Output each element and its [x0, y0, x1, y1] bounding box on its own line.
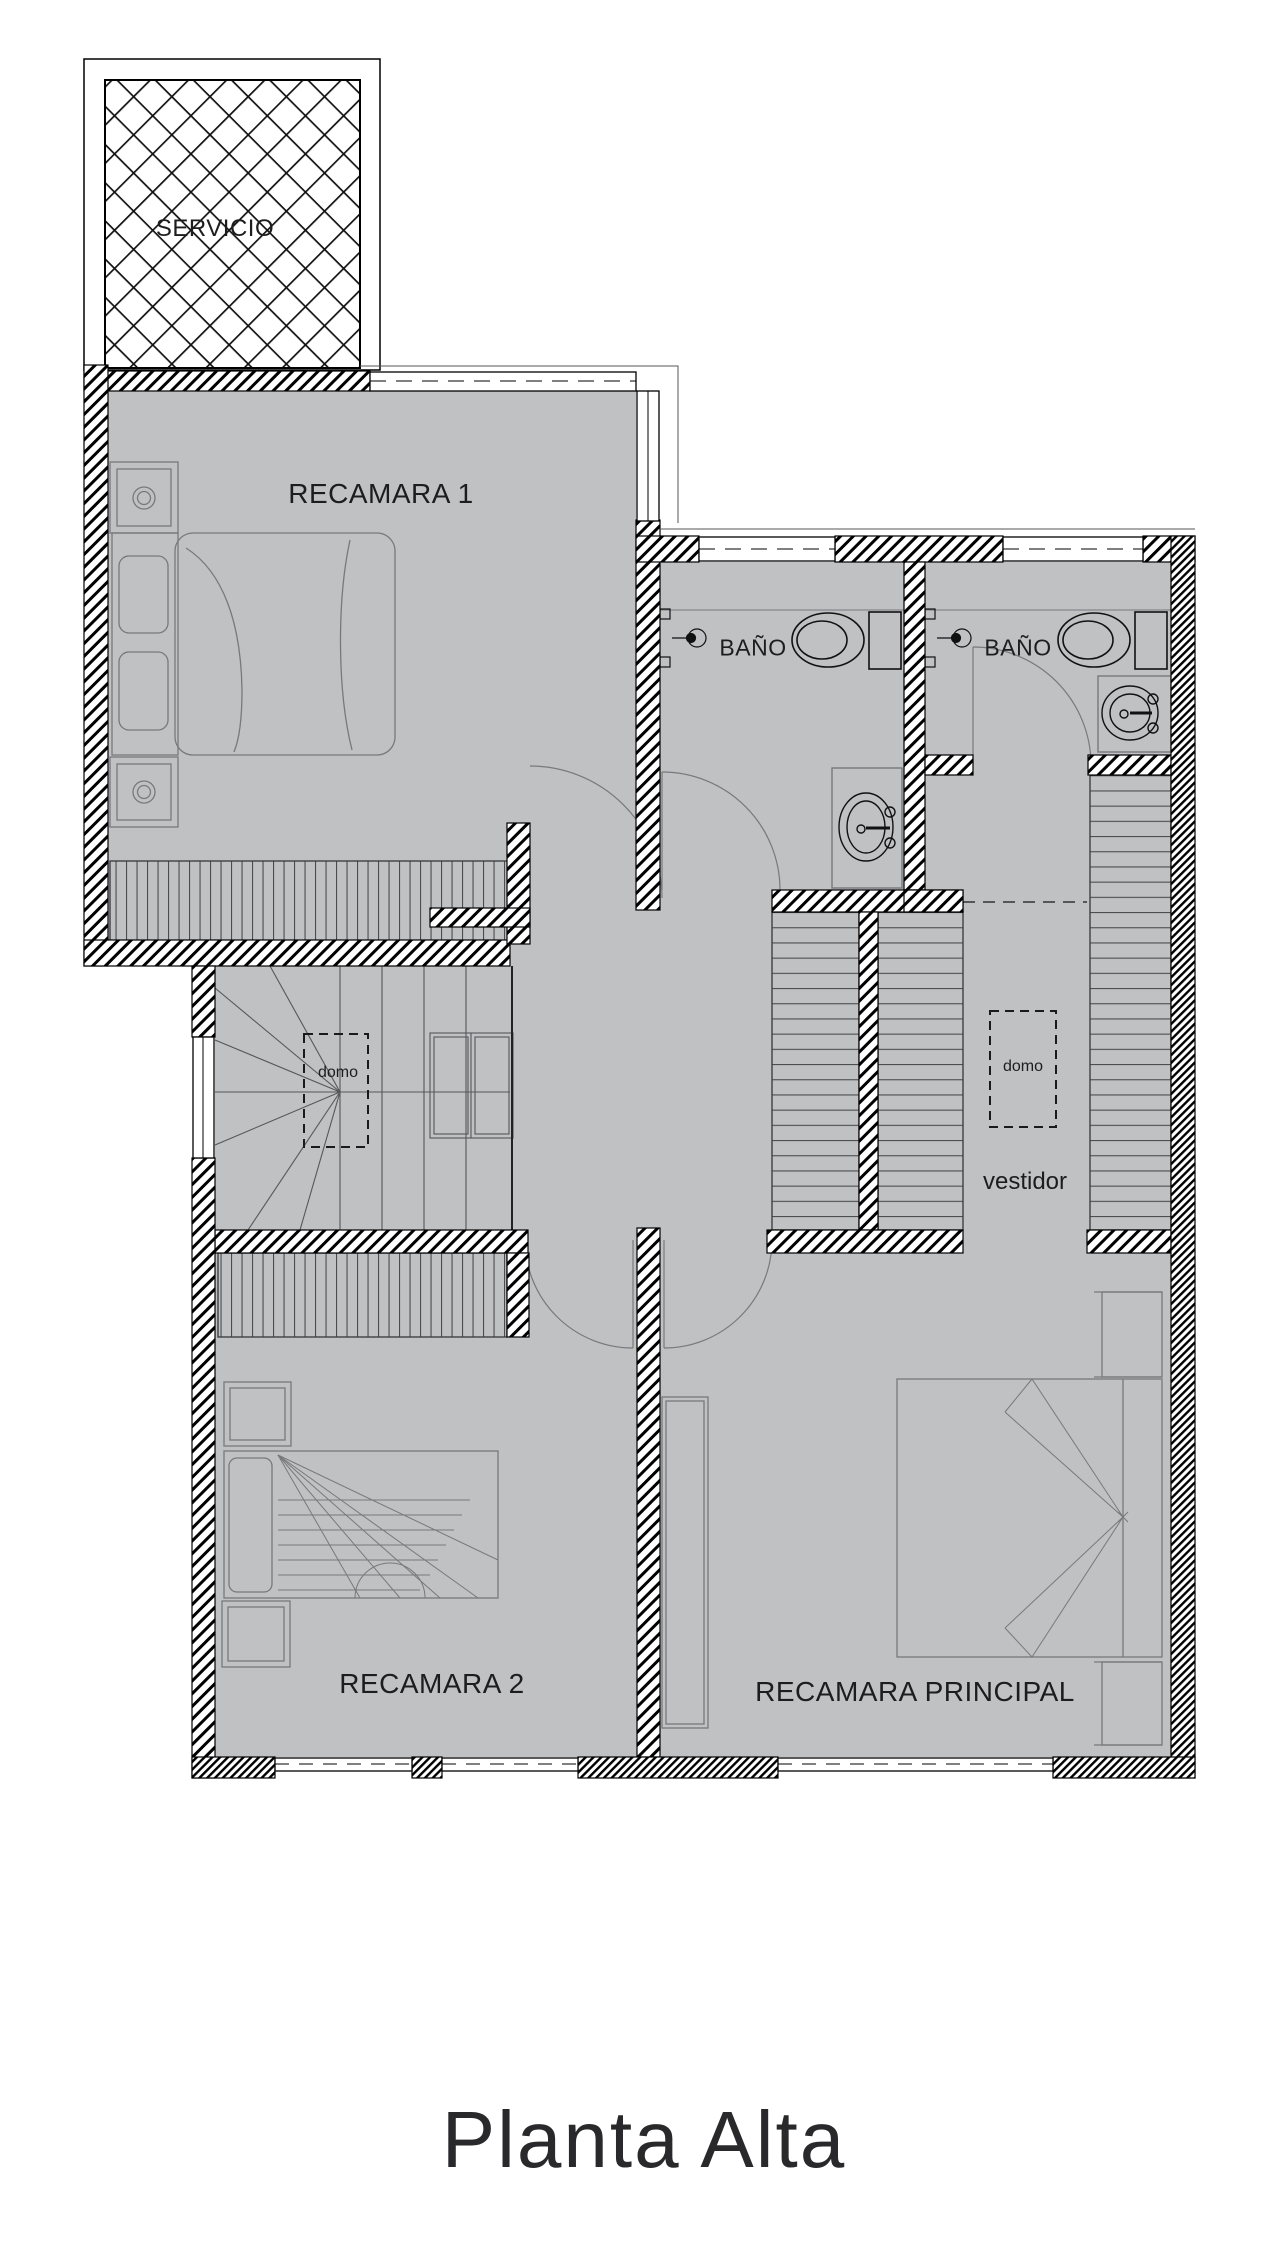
room-label-vestidor: vestidor [983, 1170, 1067, 1194]
room-label-bano-2: BAÑO [984, 637, 1051, 660]
room-label-recamara-2: RECAMARA 2 [339, 1670, 525, 1698]
closet-hall-left [772, 912, 859, 1230]
window-stairs-left [193, 1037, 214, 1158]
annotation-domo-vestidor: domo [1003, 1059, 1043, 1075]
floor-hall-gap [636, 890, 660, 1228]
closet-vestidor-left [878, 912, 963, 1230]
room-label-principal: RECAMARA PRINCIPAL [755, 1678, 1075, 1706]
closet-recamara-2 [218, 1253, 507, 1337]
room-label-servicio: SERVICIO [156, 217, 274, 241]
window-bano-1 [699, 537, 835, 561]
window-bano-2 [1003, 537, 1143, 561]
room-label-recamara-1: RECAMARA 1 [288, 480, 474, 508]
annotation-domo-stairs: domo [318, 1065, 358, 1081]
window-recamara-2-b [442, 1758, 578, 1771]
room-label-bano-1: BAÑO [719, 637, 786, 660]
window-recamara-2-a [275, 1758, 412, 1771]
closet-recamara-1 [110, 861, 510, 944]
floor-plan-page: SERVICIO RECAMARA 1 BAÑO BAÑO domo domo … [0, 0, 1276, 2250]
closet-vestidor-right [1090, 775, 1171, 1230]
window-recamara-1-right [637, 391, 659, 521]
page-title: Planta Alta [442, 2100, 847, 2180]
window-recamara-1-top [370, 372, 636, 391]
floor-plan-drawing [0, 0, 1276, 2250]
window-principal [778, 1758, 1053, 1771]
floor-lower-left [215, 966, 637, 1757]
